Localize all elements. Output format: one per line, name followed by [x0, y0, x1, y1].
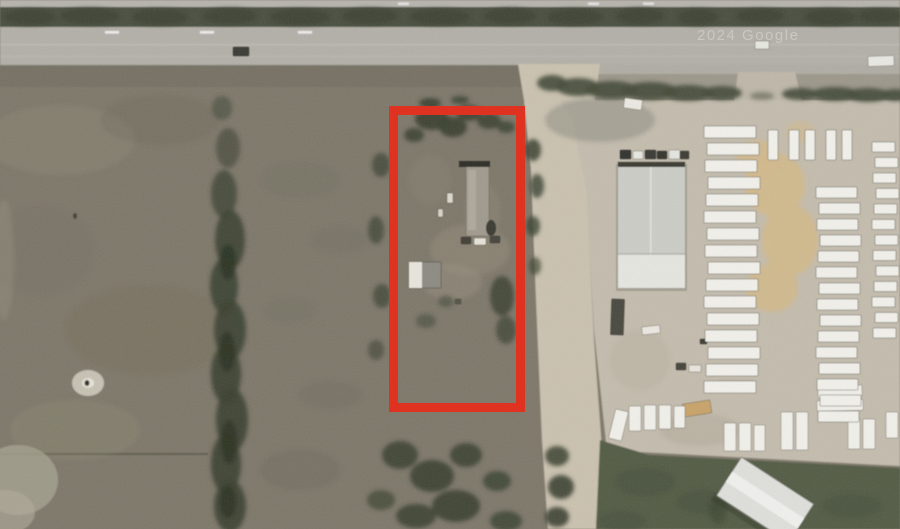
photo-grain-overlay [0, 0, 900, 529]
satellite-image: 2024 Google [0, 0, 900, 529]
satellite-canvas: 2024 Google [0, 0, 900, 529]
imagery-watermark: 2024 Google [697, 27, 799, 44]
